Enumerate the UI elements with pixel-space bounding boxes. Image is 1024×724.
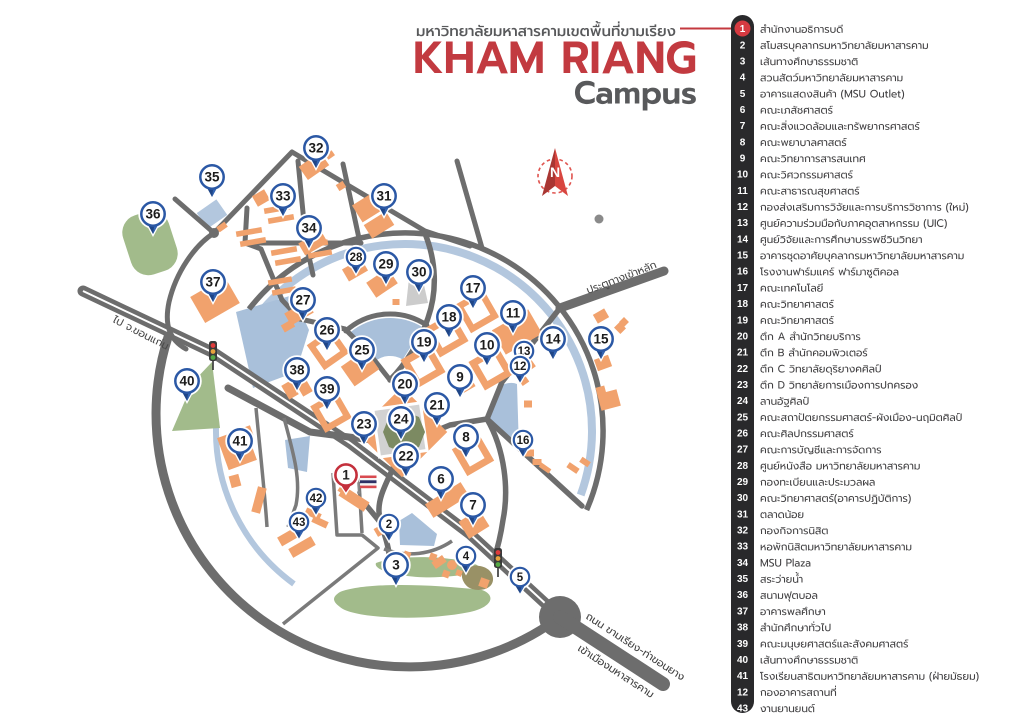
svg-text:19: 19	[416, 335, 431, 350]
svg-text:26: 26	[737, 429, 749, 440]
svg-text:5: 5	[517, 572, 524, 584]
svg-text:8: 8	[462, 430, 470, 445]
svg-text:42: 42	[310, 493, 323, 505]
svg-text:10: 10	[737, 170, 749, 181]
svg-text:23: 23	[737, 380, 749, 391]
svg-text:13: 13	[737, 218, 749, 229]
svg-text:41: 41	[737, 671, 749, 682]
svg-text:12: 12	[737, 202, 749, 213]
svg-text:37: 37	[205, 275, 220, 290]
svg-text:7: 7	[740, 121, 746, 132]
svg-text:17: 17	[737, 283, 749, 294]
svg-text:1: 1	[740, 24, 746, 35]
svg-text:11: 11	[737, 186, 748, 197]
svg-text:19: 19	[737, 315, 749, 326]
svg-text:35: 35	[204, 170, 220, 185]
svg-text:10: 10	[479, 338, 494, 353]
svg-text:9: 9	[740, 154, 746, 165]
svg-text:37: 37	[737, 606, 749, 617]
svg-text:12: 12	[514, 361, 527, 373]
svg-text:5: 5	[740, 89, 746, 100]
svg-text:2: 2	[740, 40, 746, 51]
svg-text:43: 43	[293, 517, 306, 529]
svg-text:41: 41	[232, 434, 248, 449]
svg-text:3: 3	[392, 558, 400, 573]
svg-text:32: 32	[308, 141, 323, 156]
svg-text:6: 6	[740, 105, 746, 116]
svg-text:24: 24	[393, 412, 409, 427]
svg-text:30: 30	[737, 493, 749, 504]
svg-text:31: 31	[376, 189, 392, 204]
svg-text:38: 38	[737, 623, 749, 634]
svg-text:43: 43	[737, 704, 749, 715]
svg-text:17: 17	[465, 281, 480, 296]
svg-text:1: 1	[342, 468, 350, 483]
svg-text:40: 40	[737, 655, 749, 666]
svg-text:39: 39	[737, 639, 749, 650]
svg-text:27: 27	[295, 293, 310, 308]
svg-text:26: 26	[319, 323, 335, 338]
svg-text:4: 4	[740, 73, 746, 84]
svg-text:15: 15	[593, 332, 609, 347]
svg-text:35: 35	[737, 574, 749, 585]
svg-text:22: 22	[398, 449, 413, 464]
svg-text:21: 21	[429, 398, 445, 413]
svg-text:2: 2	[386, 519, 392, 531]
svg-text:39: 39	[319, 382, 334, 397]
svg-text:11: 11	[506, 306, 521, 321]
svg-text:7: 7	[469, 498, 477, 513]
svg-text:24: 24	[737, 396, 749, 407]
svg-text:28: 28	[737, 461, 749, 472]
svg-text:36: 36	[145, 207, 161, 222]
svg-text:18: 18	[737, 299, 749, 310]
svg-text:14: 14	[737, 234, 749, 245]
svg-text:18: 18	[441, 310, 457, 325]
svg-text:N: N	[550, 164, 560, 180]
svg-text:30: 30	[411, 265, 426, 280]
svg-text:23: 23	[356, 417, 372, 432]
svg-text:12: 12	[737, 687, 749, 698]
svg-text:21: 21	[737, 348, 749, 359]
svg-text:6: 6	[437, 472, 445, 487]
svg-text:33: 33	[737, 542, 749, 553]
svg-text:20: 20	[737, 331, 749, 342]
svg-text:29: 29	[737, 477, 749, 488]
svg-text:25: 25	[737, 412, 749, 423]
svg-text:14: 14	[545, 332, 561, 347]
svg-text:25: 25	[354, 343, 370, 358]
svg-text:29: 29	[378, 257, 393, 272]
svg-text:28: 28	[350, 252, 363, 264]
svg-text:32: 32	[737, 526, 749, 537]
svg-text:40: 40	[179, 374, 194, 389]
svg-text:8: 8	[740, 137, 746, 148]
svg-text:27: 27	[737, 445, 749, 456]
svg-text:16: 16	[517, 435, 530, 447]
svg-text:33: 33	[275, 189, 291, 204]
svg-text:36: 36	[737, 590, 749, 601]
svg-text:20: 20	[397, 377, 412, 392]
svg-text:34: 34	[301, 221, 317, 236]
svg-text:9: 9	[456, 370, 464, 385]
svg-text:15: 15	[737, 251, 749, 262]
svg-text:34: 34	[737, 558, 749, 569]
svg-text:16: 16	[737, 267, 749, 278]
svg-text:3: 3	[740, 57, 746, 68]
svg-text:31: 31	[737, 509, 749, 520]
svg-text:38: 38	[289, 363, 305, 378]
svg-text:22: 22	[737, 364, 749, 375]
svg-text:4: 4	[463, 551, 470, 563]
